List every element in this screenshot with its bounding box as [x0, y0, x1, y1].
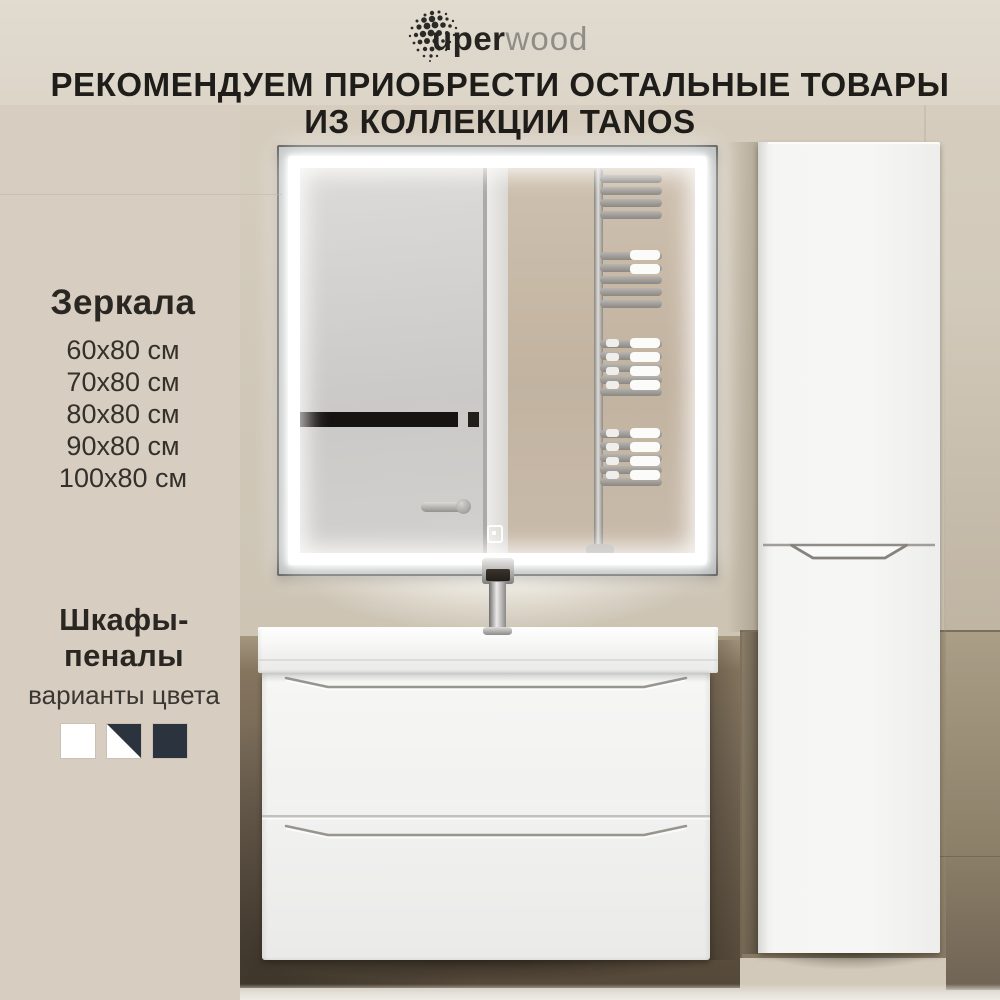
cabinet-side-shadow-lower — [742, 632, 758, 954]
cabinet-side-shadow-upper — [726, 142, 758, 632]
uperwood-logo-text: uperwood — [432, 20, 588, 58]
floor-edge-strip — [235, 984, 1000, 1000]
tile-grout-horizontal — [940, 856, 1000, 857]
mirror-size-item: 80х80 см — [0, 398, 246, 430]
cabinets-title: Шкафы-пеналы — [0, 602, 248, 674]
wall-right-shade — [944, 300, 1000, 632]
tall-cabinet-handle-groove — [758, 530, 940, 572]
faucet-spout-opening — [486, 569, 510, 581]
color-swatch-white-dark-split — [107, 724, 141, 758]
cabinets-info-block: Шкафы-пеналы варианты цвета — [0, 602, 248, 758]
mirror-glass — [288, 156, 707, 565]
mirror-reflection-door-handle — [421, 502, 467, 512]
banner-heading: РЕКОМЕНДУЕМ ПРИОБРЕСТИ ОСТАЛЬНЫЕ ТОВАРЫ … — [0, 66, 1000, 140]
logo-text-light: wood — [506, 20, 589, 57]
color-swatch-row — [0, 724, 248, 758]
wall-right-lower-tiles — [946, 630, 1000, 990]
color-swatch-dark — [153, 724, 187, 758]
mirror-reflection-dark-stripe — [288, 412, 458, 427]
product-banner: uperwood РЕКОМЕНДУЕМ ПРИОБРЕСТИ ОСТАЛЬНЫ… — [0, 0, 1000, 1000]
heading-line-1: РЕКОМЕНДУЕМ ПРИОБРЕСТИ ОСТАЛЬНЫЕ ТОВАРЫ — [0, 66, 1000, 103]
faucet-body — [489, 582, 506, 632]
logo-text-bold: uper — [432, 20, 506, 57]
towel-rail-reflection — [584, 162, 680, 562]
cabinets-subtitle: варианты цвета — [0, 680, 248, 711]
mirror-size-item: 70х80 см — [0, 366, 246, 398]
mirrors-info-block: Зеркала 60х80 см 70х80 см 80х80 см 90х80… — [0, 283, 246, 494]
faucet-base — [483, 627, 512, 635]
color-swatch-white — [61, 724, 95, 758]
mirror-size-item: 100х80 см — [0, 462, 246, 494]
mirror-reflection-dark-stripe-segment — [468, 412, 479, 427]
mirror-size-item: 60х80 см — [0, 334, 246, 366]
mirror-size-item: 90х80 см — [0, 430, 246, 462]
mirror-reflection-door-frame — [487, 156, 508, 565]
mirrors-title: Зеркала — [0, 283, 246, 323]
drawer-handle-grooves — [262, 668, 710, 843]
tile-grout-horizontal-left — [0, 194, 282, 195]
sink-lip-line — [258, 659, 718, 661]
led-mirror — [277, 145, 718, 576]
mirror-touch-sensor-icon — [487, 525, 503, 543]
heading-line-2: ИЗ КОЛЛЕКЦИИ TANOS — [0, 103, 1000, 140]
left-info-panel — [0, 105, 240, 1000]
